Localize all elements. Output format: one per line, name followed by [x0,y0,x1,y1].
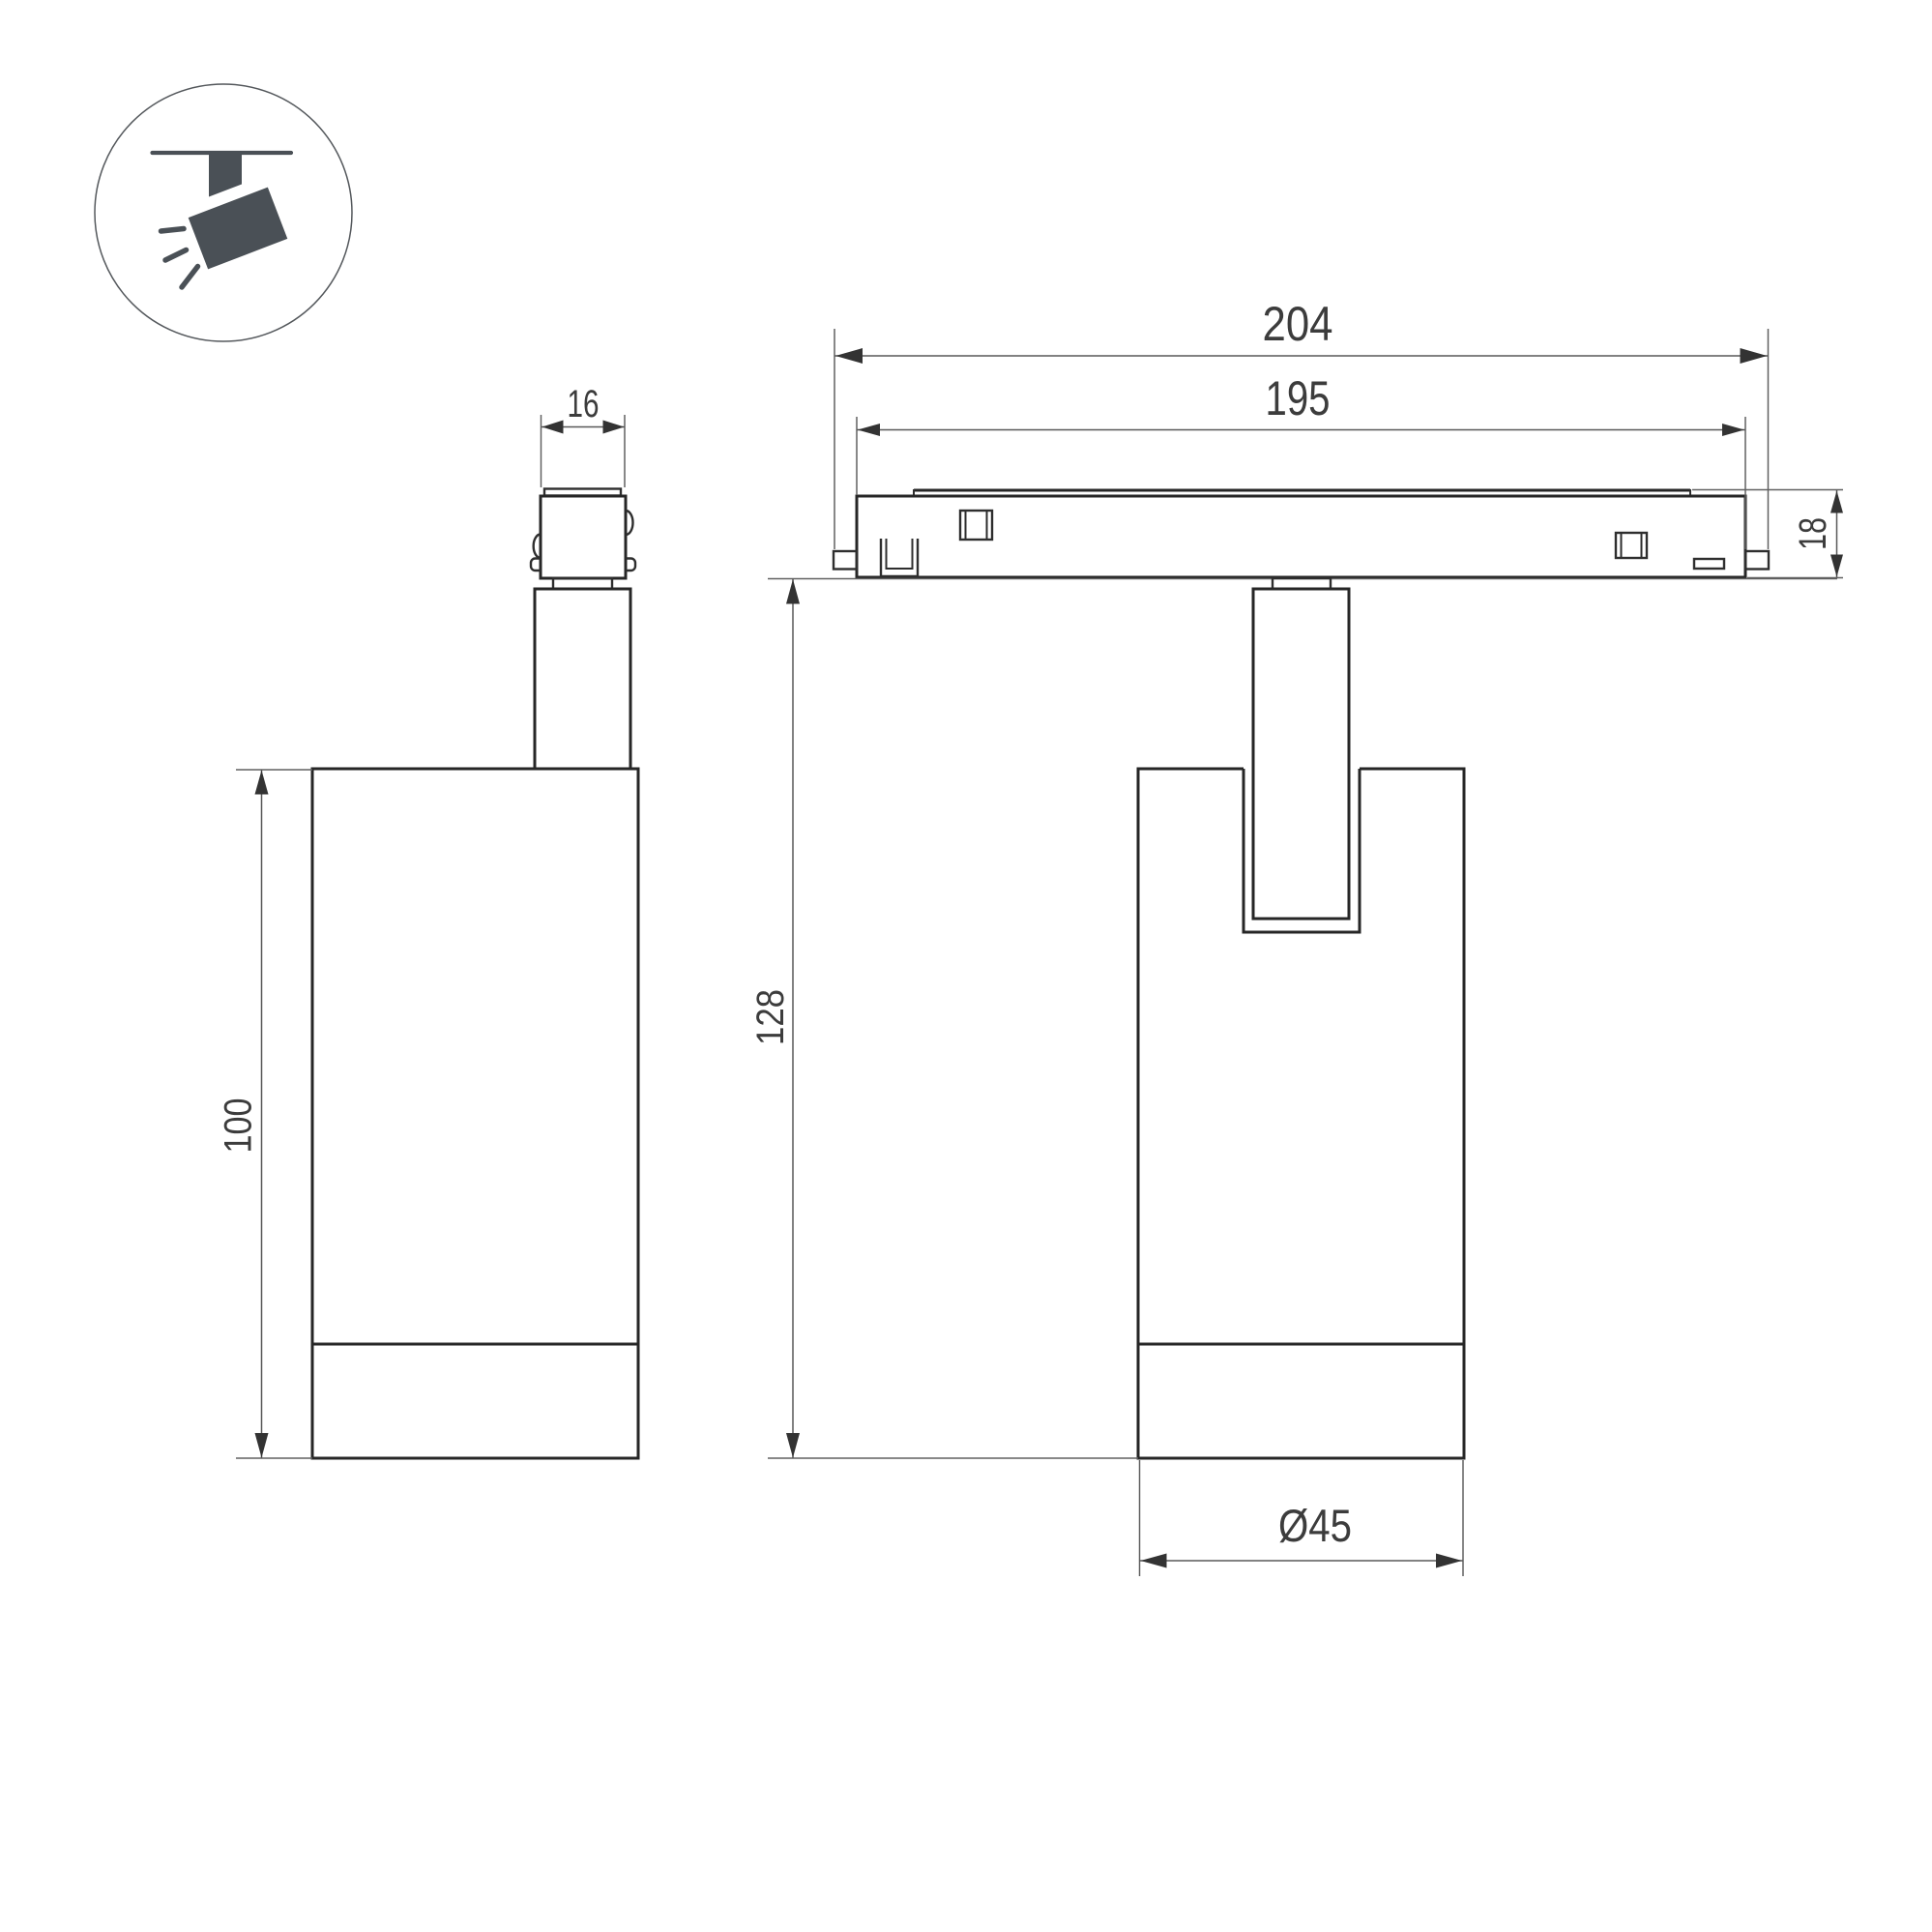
svg-text:18: 18 [1792,517,1834,550]
svg-text:Ø45: Ø45 [1278,1500,1352,1551]
svg-text:204: 204 [1263,297,1333,351]
svg-text:128: 128 [749,989,792,1045]
svg-text:16: 16 [568,383,600,425]
svg-text:100: 100 [218,1098,260,1154]
svg-text:195: 195 [1266,371,1331,425]
